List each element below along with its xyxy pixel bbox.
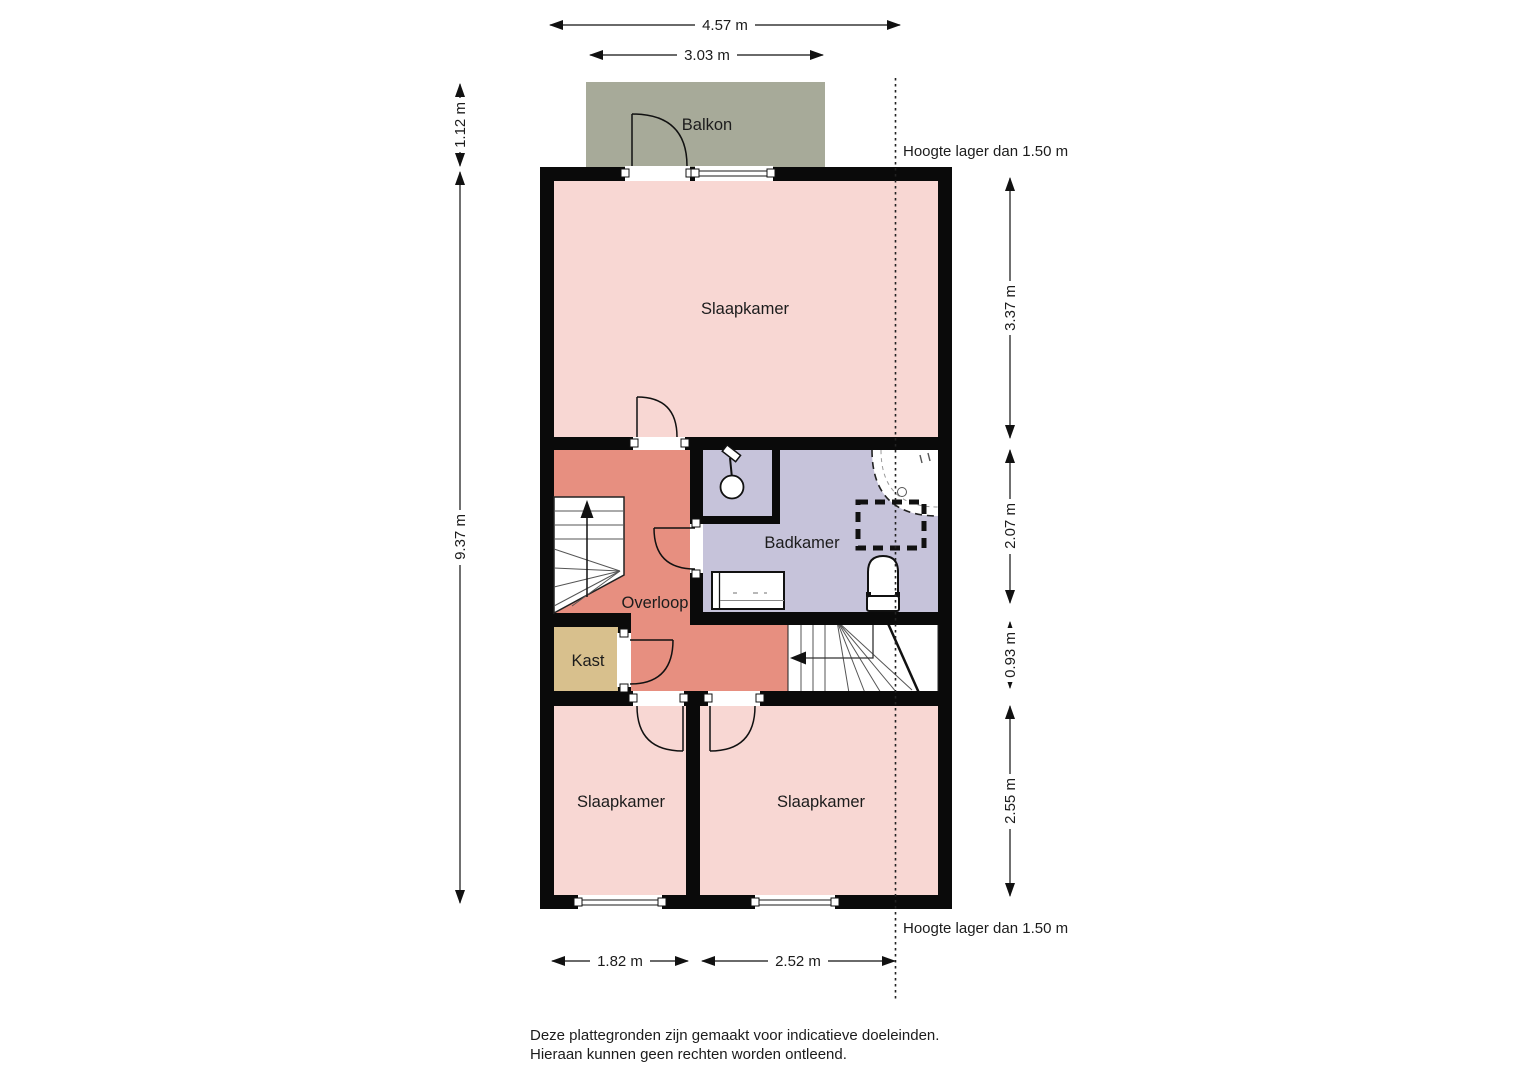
dim-right-top: 3.37 m	[1002, 285, 1019, 331]
footer-disclaimer-line2: Hieraan kunnen geen rechten worden ontle…	[530, 1046, 847, 1063]
room-label-overloop: Overloop	[622, 594, 689, 612]
height-note-bottom: Hoogte lager dan 1.50 m	[903, 920, 1068, 937]
height-note-top: Hoogte lager dan 1.50 m	[903, 143, 1068, 160]
dim-left-balcony: 1.12 m	[452, 102, 469, 148]
bedroom-left-window	[574, 895, 666, 910]
vanity-icon	[712, 572, 784, 609]
floorplan-page: Balkon Slaapkamer Badkamer Overloop Kast…	[0, 0, 1527, 1080]
dim-bottom-right: 2.52 m	[775, 953, 821, 970]
room-label-slaapkamer-top: Slaapkamer	[701, 300, 790, 318]
dim-right-stairs: 0.93 m	[1002, 632, 1019, 678]
dim-right-bottom: 2.55 m	[1002, 778, 1019, 824]
dim-bottom-left: 1.82 m	[597, 953, 643, 970]
dim-right-middle: 2.07 m	[1002, 503, 1019, 549]
room-label-badkamer: Badkamer	[764, 534, 840, 552]
room-label-slaapkamer-left: Slaapkamer	[577, 793, 666, 811]
room-label-slaapkamer-right: Slaapkamer	[777, 793, 866, 811]
footer-disclaimer-line1: Deze plattegronden zijn gemaakt voor ind…	[530, 1027, 939, 1044]
bedroom-right-window	[751, 895, 839, 910]
balcony-label: Balkon	[682, 116, 732, 134]
floorplan-canvas: Balkon Slaapkamer Badkamer Overloop Kast…	[0, 0, 1527, 1080]
room-label-kast: Kast	[571, 652, 604, 670]
dim-top-balcony: 3.03 m	[684, 47, 730, 64]
dim-left-total: 9.37 m	[452, 514, 469, 560]
balcony-window	[691, 166, 775, 181]
dim-top-total: 4.57 m	[702, 17, 748, 34]
stairs-down-icon	[788, 618, 938, 693]
